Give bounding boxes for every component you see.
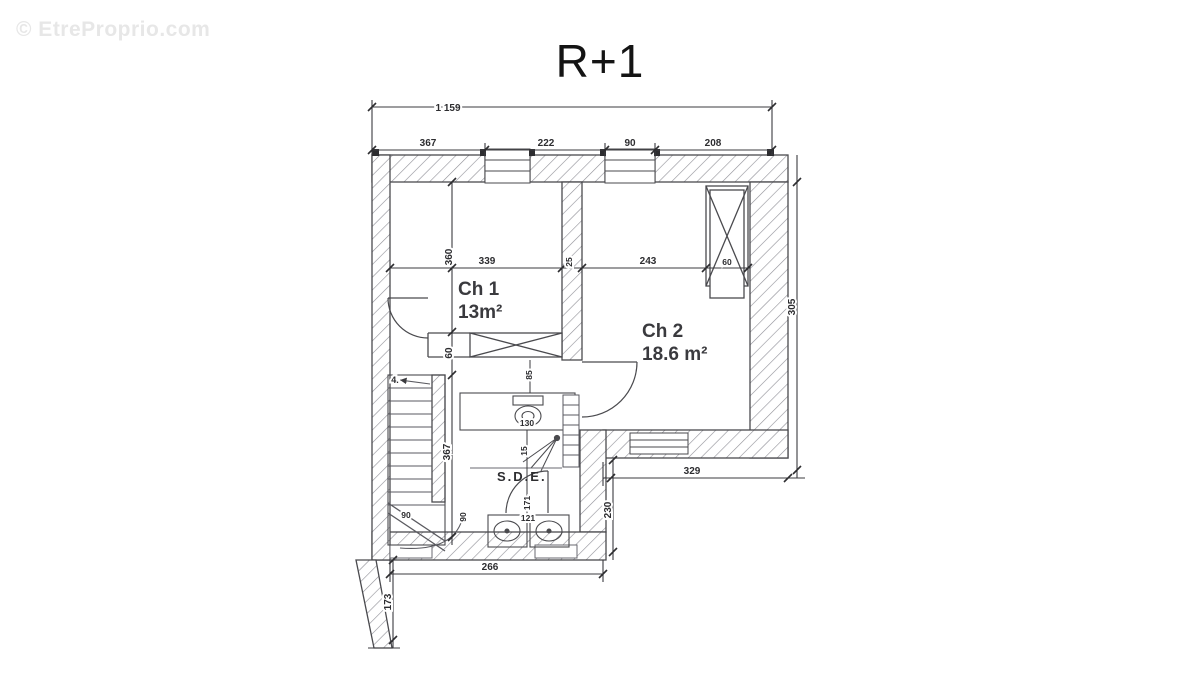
- dim-total-width: 1 159: [435, 103, 460, 114]
- dim-ch2-width: 243: [640, 256, 657, 267]
- dim-ch1-depth: 360: [444, 248, 455, 265]
- dim-ch1-width: 339: [479, 256, 496, 267]
- window-ch2-bottom: [630, 433, 688, 454]
- dim-stair-height: 367: [442, 443, 453, 460]
- door-ch1: [388, 298, 428, 338]
- floor-plan-page: © EtreProprio.com R+1: [0, 0, 1200, 675]
- dim-duct-width: 60: [722, 257, 732, 267]
- dim-sde-width: 121: [521, 513, 535, 523]
- floor-plan-drawing: 1 159 367 222 90 208 339 243 60 25 360 6…: [0, 0, 1200, 675]
- window-top-1: [485, 149, 530, 183]
- dim-hall-height: 60: [444, 347, 455, 359]
- window-top-2: [605, 149, 655, 183]
- wall-right: [750, 182, 788, 458]
- dim-bottom-width: 266: [482, 562, 499, 573]
- stairs: [388, 375, 462, 551]
- room-label-ch2: Ch 2: [642, 321, 683, 342]
- wall-top-c: [655, 155, 788, 182]
- towel-radiator: [563, 395, 579, 467]
- room-area-ch1: 13m²: [458, 302, 502, 323]
- duct-shaft: [706, 186, 748, 298]
- room-label-ch1: Ch 1: [458, 279, 500, 300]
- dim-wc-side: 85: [524, 370, 534, 380]
- dim-shower: 15: [519, 446, 529, 456]
- wc-fixture: [460, 393, 575, 430]
- dim-ch2-bottom: 329: [684, 466, 701, 477]
- wall-top-b: [530, 155, 605, 182]
- dimension-ticks: [368, 103, 801, 644]
- stair-count-label: 4.: [391, 375, 399, 385]
- door-ch2: [582, 362, 637, 417]
- dim-left-ext-height: 173: [383, 593, 394, 610]
- wall-left: [372, 155, 390, 560]
- room-label-sde: S.D.E.: [497, 469, 547, 484]
- dim-wc-width: 130: [520, 418, 534, 428]
- dim-hall-width: 90: [458, 512, 468, 522]
- dim-top-win1: 222: [538, 138, 555, 149]
- dim-sde-door: 171: [522, 496, 532, 510]
- dim-wall-thickness: 25: [564, 257, 574, 267]
- dim-stair-width: 90: [401, 510, 411, 520]
- dim-top-win2: 90: [624, 138, 636, 149]
- wall-stair-side: [432, 375, 445, 502]
- dim-top-right: 208: [705, 138, 722, 149]
- dim-sde-right-height: 230: [603, 501, 614, 518]
- room-area-ch2: 18.6 m²: [642, 344, 707, 365]
- dim-top-left: 367: [420, 138, 437, 149]
- dim-right-height: 305: [787, 298, 798, 315]
